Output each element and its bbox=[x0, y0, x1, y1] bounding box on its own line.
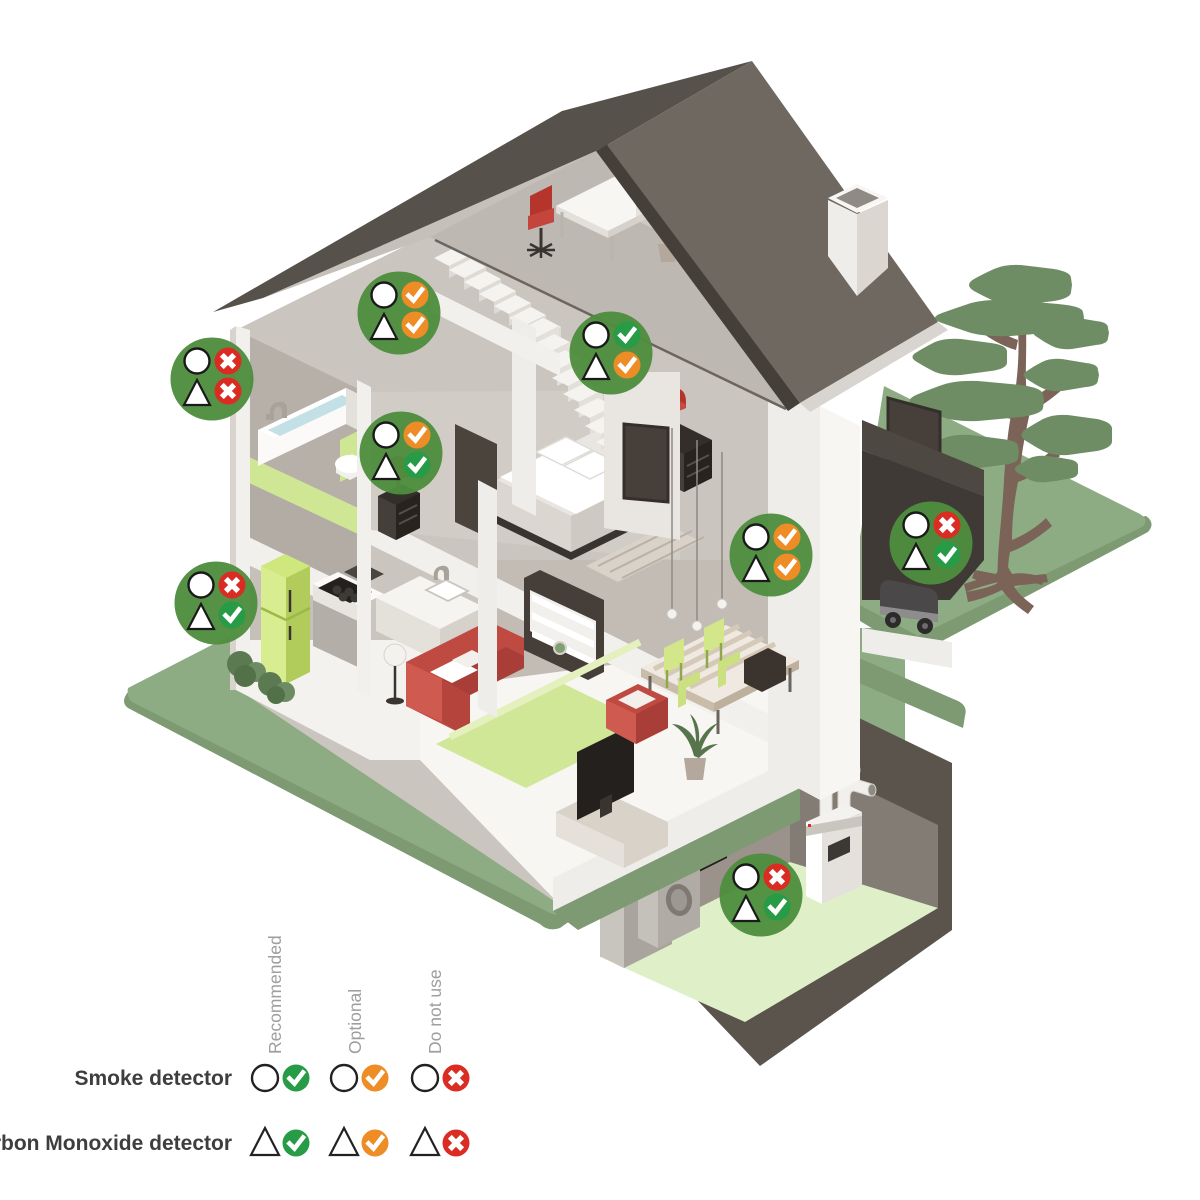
svg-text:Carbon Monoxide detector: Carbon Monoxide detector bbox=[0, 1132, 232, 1155]
svg-text:Optional: Optional bbox=[345, 989, 365, 1054]
svg-text:Do not use: Do not use bbox=[425, 969, 445, 1054]
svg-text:Smoke detector: Smoke detector bbox=[74, 1067, 232, 1090]
svg-text:Recommended: Recommended bbox=[265, 935, 285, 1054]
